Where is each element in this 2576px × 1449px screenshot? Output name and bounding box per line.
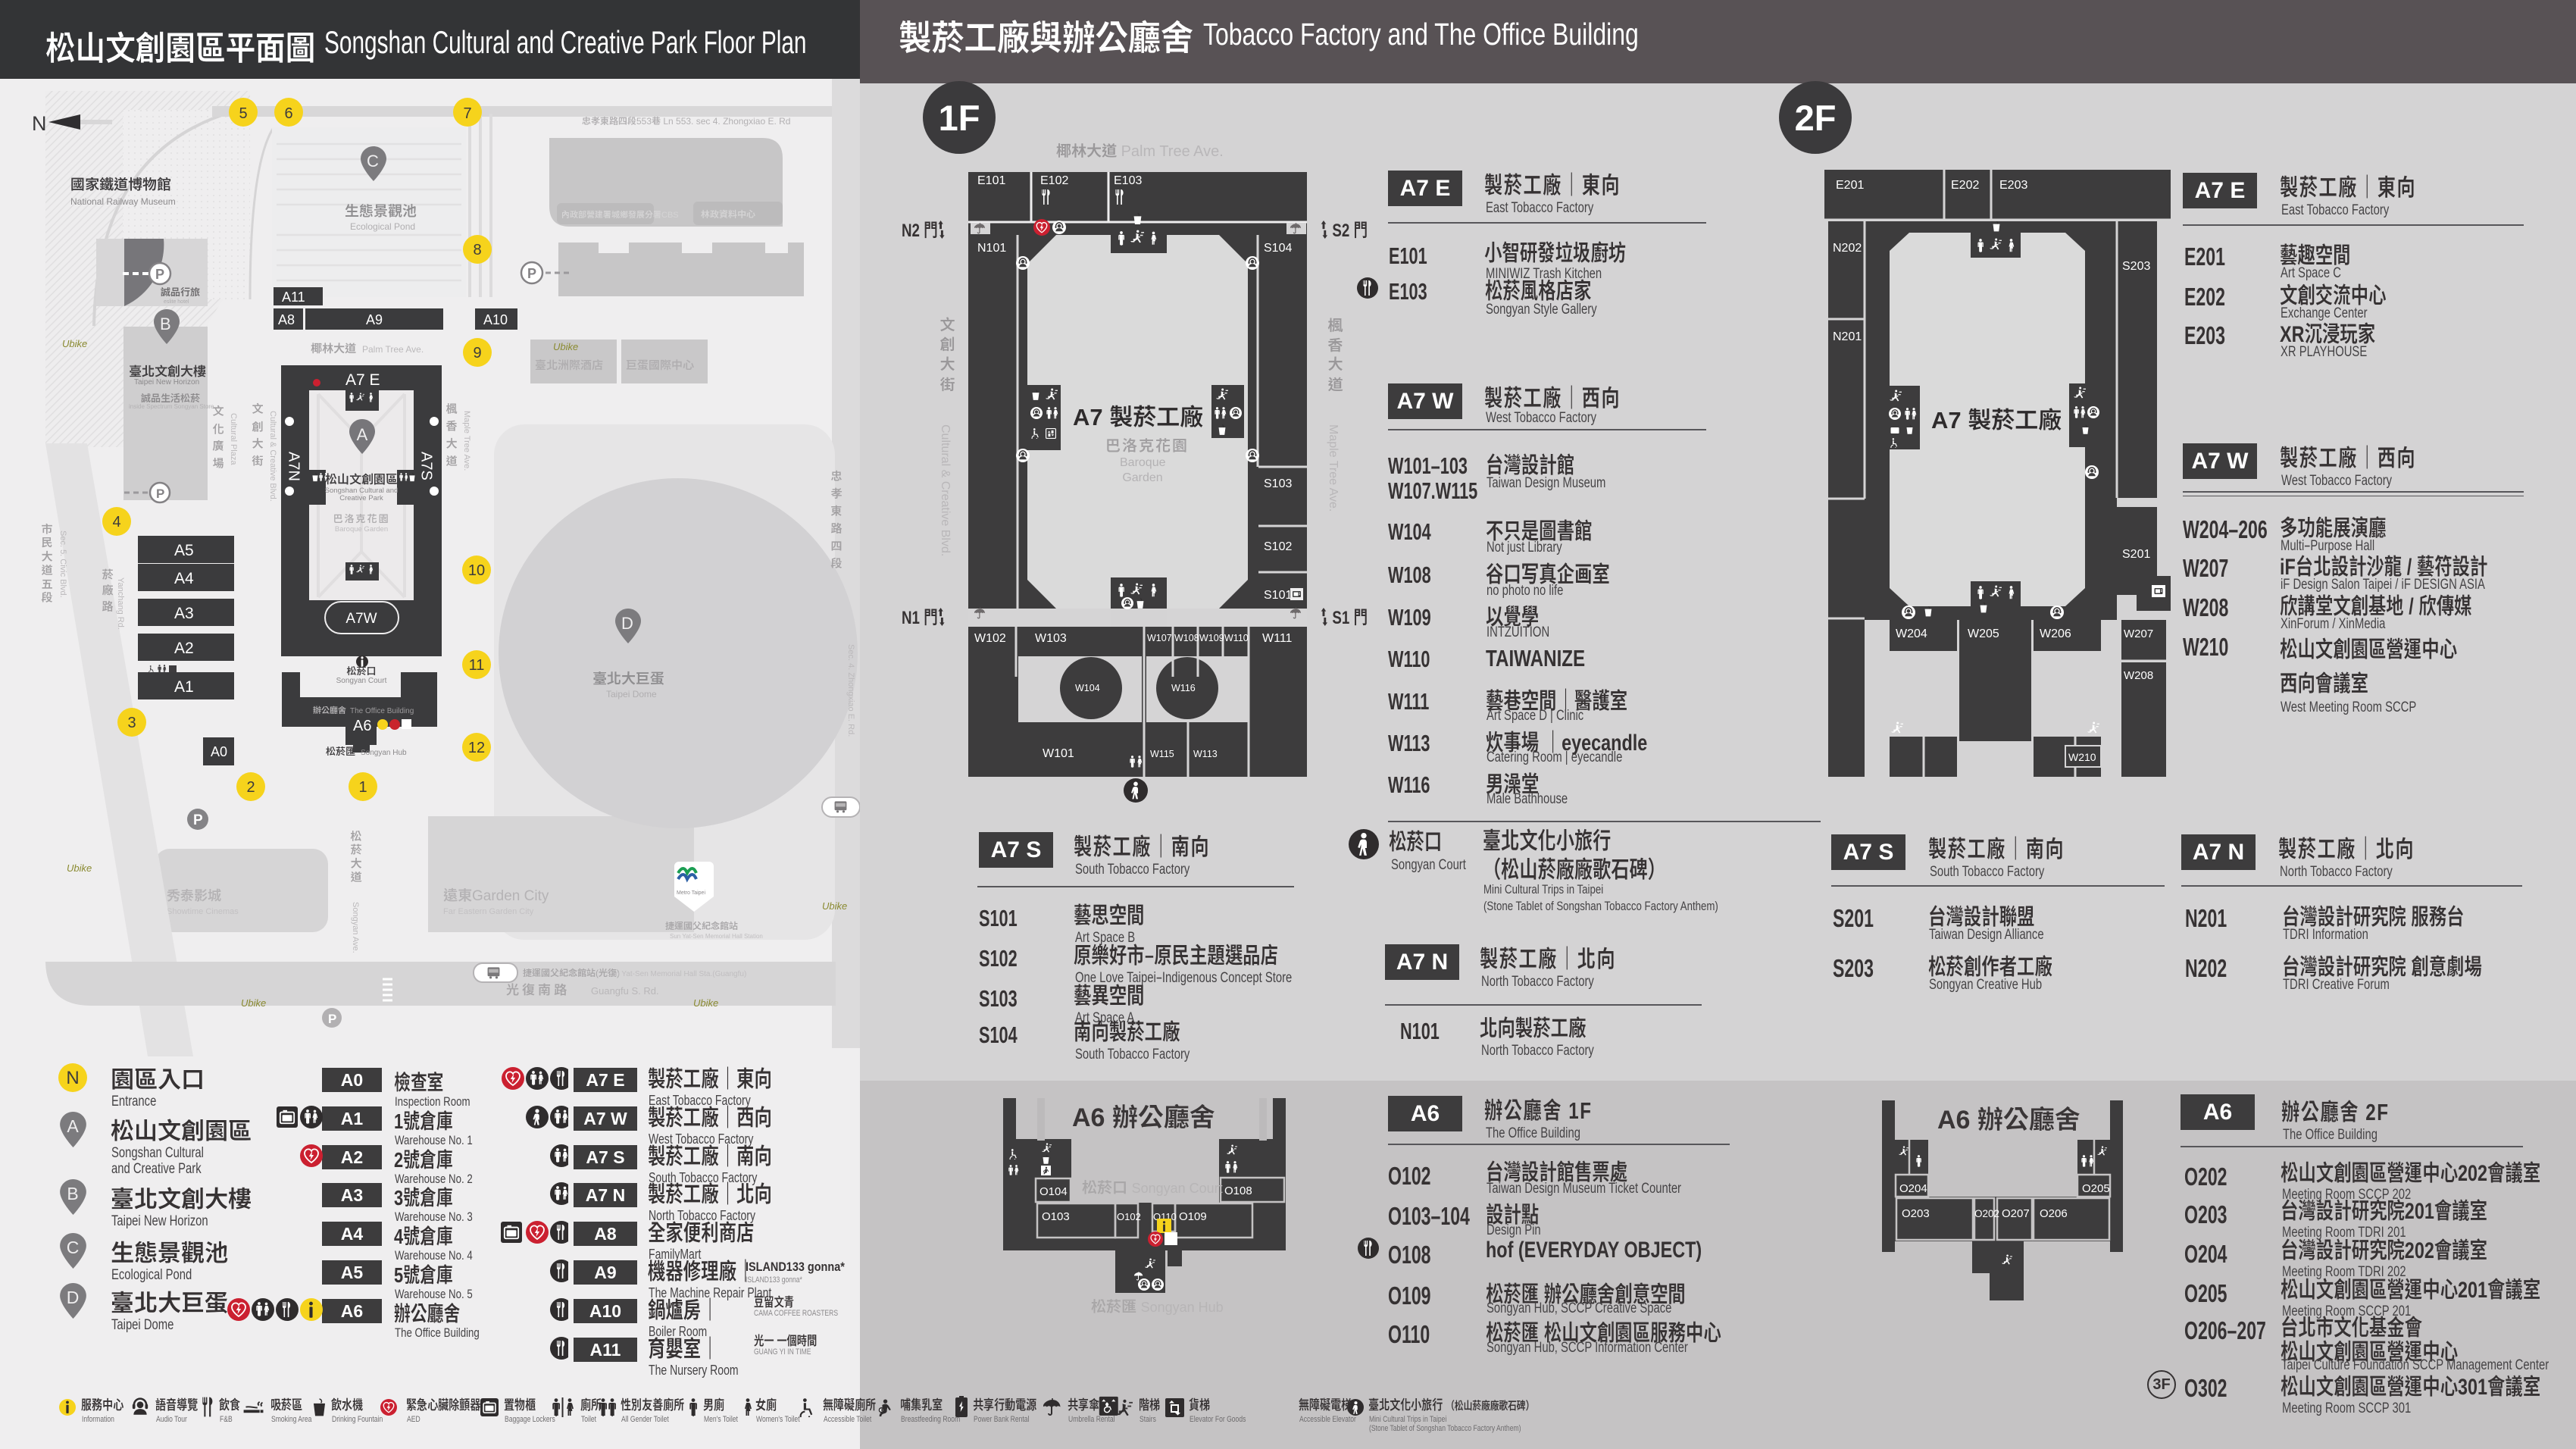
svg-text:W103: W103 <box>1035 627 1067 646</box>
svg-text:eslite hotel: eslite hotel <box>164 298 189 305</box>
svg-text:忠孝東路四段: 忠孝東路四段 <box>829 470 845 574</box>
svg-text:國家鐵道博物館: 國家鐵道博物館 <box>70 174 171 194</box>
svg-text:10: 10 <box>468 562 485 579</box>
svg-text:Taipei Dome: Taipei Dome <box>606 687 657 700</box>
svg-text:A7 製菸工廠: A7 製菸工廠 <box>1931 401 2062 435</box>
svg-text:N202: N202 <box>1833 237 1862 255</box>
svg-text:N101: N101 <box>977 237 1006 255</box>
svg-text:生態景觀池: 生態景觀池 <box>345 200 417 221</box>
svg-text:文創大街: 文創大街 <box>250 402 266 472</box>
svg-text:光復南路: 光復南路 <box>506 979 570 998</box>
svg-text:A10: A10 <box>483 309 508 329</box>
svg-text:巨蛋國際中心: 巨蛋國際中心 <box>626 357 694 373</box>
svg-text:inside Spectrum Songyan Store: inside Spectrum Songyan Store <box>129 402 214 411</box>
svg-text:Far Eastern Garden City: Far Eastern Garden City <box>443 905 534 917</box>
svg-text:A11: A11 <box>282 286 305 306</box>
svg-text:P: P <box>328 1012 336 1026</box>
svg-text:A8: A8 <box>278 309 295 329</box>
svg-text:O104: O104 <box>1039 1183 1068 1199</box>
svg-text:E201: E201 <box>1836 174 1864 192</box>
svg-text:W107: W107 <box>1147 630 1172 644</box>
svg-text:A1: A1 <box>174 674 194 697</box>
svg-text:遠東Garden City: 遠東Garden City <box>443 884 549 905</box>
svg-text:Creative Park: Creative Park <box>339 492 383 502</box>
svg-text:Ubike: Ubike <box>822 900 847 912</box>
svg-text:A9: A9 <box>366 309 383 329</box>
svg-text:P: P <box>155 267 164 282</box>
svg-text:Taipei New Horizon: Taipei New Horizon <box>134 375 199 387</box>
svg-text:A3: A3 <box>174 601 194 624</box>
svg-text:E202: E202 <box>1951 174 1979 192</box>
svg-text:臺北大巨蛋: 臺北大巨蛋 <box>592 668 665 688</box>
svg-text:誠品行旅: 誠品行旅 <box>161 284 200 299</box>
svg-text:6: 6 <box>284 105 292 122</box>
svg-text:Cultural Plaza: Cultural Plaza <box>228 413 240 465</box>
svg-text:菸廠路: 菸廠路 <box>100 568 116 616</box>
svg-text:O109: O109 <box>1179 1208 1207 1224</box>
svg-text:椰林大道: 椰林大道 <box>311 340 356 356</box>
svg-text:Maple Tree Ave.: Maple Tree Ave. <box>461 411 474 471</box>
svg-text:A: A <box>357 421 368 446</box>
svg-text:松菸匯: 松菸匯 <box>325 743 355 758</box>
svg-text:W206: W206 <box>2040 623 2071 641</box>
svg-text:12: 12 <box>468 740 485 756</box>
svg-text:D: D <box>67 1283 80 1309</box>
svg-text:W108: W108 <box>1174 630 1199 644</box>
svg-text:Ecological Pond: Ecological Pond <box>350 220 415 233</box>
svg-text:臺北洲際酒店: 臺北洲際酒店 <box>535 357 603 373</box>
svg-text:S104: S104 <box>1264 237 1292 255</box>
svg-text:秀泰影城: 秀泰影城 <box>167 885 221 905</box>
svg-text:S203: S203 <box>2122 255 2150 274</box>
svg-text:Metro Taipei: Metro Taipei <box>677 889 705 897</box>
svg-text:Sun Yat-Sen Memorial Hall Sta.: Sun Yat-Sen Memorial Hall Sta.(Guangfu) <box>606 967 746 978</box>
svg-text:D: D <box>621 610 633 634</box>
svg-text:辦公廳舍: 辦公廳舍 <box>313 704 346 716</box>
svg-text:W210: W210 <box>2068 750 2096 765</box>
svg-text:W104: W104 <box>1075 680 1100 694</box>
svg-text:O103: O103 <box>1042 1208 1070 1224</box>
svg-text:A6: A6 <box>353 713 371 735</box>
svg-text:9: 9 <box>473 345 481 361</box>
svg-text:忠孝東路四段553巷 Ln 553. sec 4. Zhon: 忠孝東路四段553巷 Ln 553. sec 4. Zhongxiao E. R… <box>582 114 790 127</box>
svg-text:捷運國父紀念館站: 捷運國父紀念館站 <box>665 919 738 932</box>
svg-text:S101: S101 <box>1264 584 1292 602</box>
svg-text:O203: O203 <box>1902 1205 1930 1221</box>
svg-text:E203: E203 <box>1999 174 2027 192</box>
svg-text:A: A <box>67 1112 79 1138</box>
svg-text:Cultural & Creative Blvd.: Cultural & Creative Blvd. <box>267 411 280 502</box>
svg-text:2: 2 <box>246 779 255 796</box>
svg-text:O205: O205 <box>2082 1180 2110 1196</box>
svg-text:Palm Tree Ave.: Palm Tree Ave. <box>362 343 424 355</box>
svg-text:O202: O202 <box>1974 1205 1999 1220</box>
svg-text:P: P <box>156 487 164 501</box>
svg-text:Showtime Cinemas: Showtime Cinemas <box>167 905 239 917</box>
svg-text:P: P <box>527 266 536 281</box>
svg-text:S102: S102 <box>1264 536 1292 554</box>
svg-text:B: B <box>67 1179 78 1205</box>
svg-text:捷運國父紀念館站(光復): 捷運國父紀念館站(光復) <box>523 966 620 979</box>
svg-text:B: B <box>160 311 171 335</box>
svg-text:4: 4 <box>112 514 120 530</box>
svg-text:8: 8 <box>473 242 481 258</box>
svg-text:Guangfu S. Rd.: Guangfu S. Rd. <box>591 983 659 997</box>
svg-text:A7 E: A7 E <box>345 368 380 390</box>
svg-text:E102: E102 <box>1040 170 1068 188</box>
svg-text:N201: N201 <box>1833 326 1862 344</box>
svg-text:C: C <box>367 148 379 172</box>
svg-text:Songyan Ave.: Songyan Ave. <box>350 902 362 953</box>
svg-text:Yanchang Rd.: Yanchang Rd. <box>115 577 127 630</box>
svg-text:P: P <box>193 812 203 828</box>
svg-text:Ubike: Ubike <box>62 338 87 349</box>
svg-text:S201: S201 <box>2122 543 2150 562</box>
svg-text:Baroque Garden: Baroque Garden <box>335 523 388 534</box>
svg-text:O204: O204 <box>1899 1180 1927 1196</box>
svg-text:市民大道五段: 市民大道五段 <box>39 523 55 605</box>
svg-text:National Railway Museum: National Railway Museum <box>70 195 176 208</box>
svg-text:Sec. 4. Zhongxiao E. Rd.: Sec. 4. Zhongxiao E. Rd. <box>846 644 858 737</box>
svg-text:林政資料中心: 林政資料中心 <box>701 208 756 221</box>
svg-text:A7S: A7S <box>417 452 439 480</box>
svg-text:O102: O102 <box>1117 1209 1141 1223</box>
svg-text:S103: S103 <box>1264 473 1292 491</box>
svg-text:W208: W208 <box>2124 667 2153 683</box>
svg-text:W102: W102 <box>974 627 1006 646</box>
svg-text:Sun Yat-Sen Memorial Hall Stat: Sun Yat-Sen Memorial Hall Station <box>670 932 763 940</box>
svg-text:W115: W115 <box>1150 746 1174 760</box>
svg-text:W207: W207 <box>2124 625 2153 641</box>
svg-text:1: 1 <box>358 779 367 796</box>
svg-text:Ubike: Ubike <box>67 862 92 874</box>
svg-text:N: N <box>66 1068 79 1088</box>
svg-text:W109: W109 <box>1199 630 1224 644</box>
svg-text:E101: E101 <box>977 170 1005 188</box>
svg-text:W113: W113 <box>1193 746 1218 760</box>
svg-text:Songyan Hub: Songyan Hub <box>361 746 407 757</box>
svg-text:5: 5 <box>239 105 247 122</box>
svg-text:W204: W204 <box>1896 623 1927 641</box>
svg-text:11: 11 <box>469 657 485 674</box>
svg-text:文化廣場: 文化廣場 <box>211 405 227 474</box>
svg-text:A2: A2 <box>174 636 194 659</box>
svg-text:O206: O206 <box>2040 1205 2068 1221</box>
svg-text:N: N <box>32 107 47 136</box>
svg-text:Ubike: Ubike <box>693 997 718 1009</box>
svg-text:7: 7 <box>463 105 471 122</box>
svg-text:Songyan Court: Songyan Court <box>336 674 387 685</box>
svg-text:3: 3 <box>127 715 136 731</box>
svg-text:A5: A5 <box>174 538 194 561</box>
svg-text:W101: W101 <box>1043 743 1074 761</box>
svg-text:Ubike: Ubike <box>553 341 578 352</box>
svg-text:W111: W111 <box>1262 627 1293 646</box>
svg-text:W110: W110 <box>1224 630 1249 644</box>
svg-text:楓香大道: 楓香大道 <box>444 402 460 472</box>
svg-text:A7N: A7N <box>285 452 307 481</box>
svg-text:Ubike: Ubike <box>241 997 266 1009</box>
svg-text:C: C <box>67 1233 80 1259</box>
svg-text:A4: A4 <box>174 566 194 589</box>
svg-text:內政部營建署城鄉發展分署CBS: 內政部營建署城鄉發展分署CBS <box>561 208 679 221</box>
svg-text:松菸大道: 松菸大道 <box>349 830 364 884</box>
svg-text:E103: E103 <box>1114 170 1142 188</box>
svg-text:W116: W116 <box>1171 680 1196 694</box>
svg-text:A7W: A7W <box>345 607 377 627</box>
svg-text:O108: O108 <box>1224 1182 1252 1198</box>
svg-text:Sec. 5. Civic Blvd.: Sec. 5. Civic Blvd. <box>58 530 70 598</box>
svg-text:W205: W205 <box>1968 623 1999 641</box>
svg-text:A0: A0 <box>211 741 227 761</box>
svg-text:O207: O207 <box>2002 1205 2030 1221</box>
